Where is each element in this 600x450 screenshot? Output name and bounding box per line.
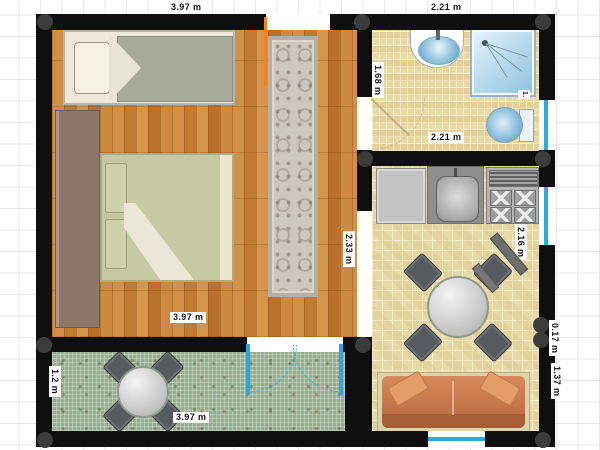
kitchen-sink-unit[interactable] <box>427 166 484 224</box>
kitchen-faucet <box>454 168 457 177</box>
patio-door-leaf[interactable] <box>339 344 343 395</box>
wall-node[interactable] <box>36 337 52 353</box>
stove-vent <box>489 170 538 187</box>
hallway-opening-floor <box>357 208 372 338</box>
washbasin-faucet <box>436 30 440 40</box>
bathroom-window[interactable] <box>544 100 548 150</box>
dim-patio-width: 3.97 m <box>173 412 209 423</box>
stove-burner <box>514 190 536 206</box>
wardrobe[interactable] <box>55 110 100 328</box>
kitchen-sink-bowl <box>436 176 479 222</box>
wall-node[interactable] <box>37 14 53 30</box>
sofa[interactable] <box>377 372 530 432</box>
shower-cabin[interactable] <box>470 28 536 97</box>
wall-node[interactable] <box>357 151 373 167</box>
entry-door-leaf[interactable] <box>264 17 267 86</box>
dim-bedroom-width-top: 3.97 m <box>168 2 204 13</box>
wall-patio-living[interactable] <box>345 337 372 447</box>
dim-toilet-bay: 1. <box>518 90 530 99</box>
patio-table[interactable] <box>117 366 169 418</box>
kitchen-window[interactable] <box>544 187 548 245</box>
double-bed-pillow <box>105 163 127 213</box>
floorplan-canvas[interactable]: 2.16 m 3.97 <box>0 0 600 450</box>
sofa-seat-divider <box>452 381 454 415</box>
stove-burner <box>514 207 536 223</box>
kitchen-counter[interactable] <box>377 169 425 223</box>
patio-door-leaf[interactable] <box>246 344 250 395</box>
stove-burner <box>490 190 512 206</box>
shower-spray <box>486 43 523 72</box>
toilet-bowl <box>486 107 523 143</box>
dim-hall-opening: 2.33 m <box>343 231 355 267</box>
wall-node[interactable] <box>533 332 549 348</box>
dim-right-wall-short: 0.17 m <box>549 320 561 356</box>
wall-bedroom-patio[interactable] <box>36 337 247 352</box>
dim-bedroom-width-bottom: 3.97 m <box>170 312 206 323</box>
dim-right-wall-lower: 1.37 m <box>551 363 563 399</box>
wall-node[interactable] <box>354 14 370 30</box>
stove[interactable] <box>486 167 539 224</box>
double-bed-frame <box>220 155 232 280</box>
dim-patio-depth: 1.2 m <box>49 366 61 397</box>
dim-bathroom-height: 1.68 m <box>372 62 384 98</box>
dining-table[interactable] <box>427 276 489 338</box>
wall-node[interactable] <box>355 337 371 353</box>
dim-bathroom-width-inner: 2.21 m <box>428 132 464 143</box>
double-bed[interactable] <box>100 153 234 282</box>
wall-node[interactable] <box>37 432 53 448</box>
toilet[interactable] <box>486 106 533 144</box>
wall-node[interactable] <box>535 151 551 167</box>
sofa-backrest <box>382 414 525 428</box>
washbasin-bowl <box>418 36 460 65</box>
wall-node[interactable] <box>533 317 549 333</box>
bathroom-door-opening[interactable] <box>357 97 372 150</box>
ornamental-rug[interactable] <box>268 36 318 297</box>
living-window[interactable] <box>428 437 485 441</box>
stove-burner <box>490 207 512 223</box>
double-bed-pillow <box>105 219 127 269</box>
wall-node[interactable] <box>535 14 551 30</box>
wall-bathroom-kitchen[interactable] <box>357 151 555 166</box>
dim-bathroom-width-top: 2.21 m <box>428 2 464 13</box>
entry-door-opening[interactable] <box>266 14 330 30</box>
single-bed[interactable] <box>63 30 235 105</box>
double-bed-fold <box>124 203 194 280</box>
single-bed-pillow <box>74 42 110 94</box>
wall-node[interactable] <box>535 432 551 448</box>
